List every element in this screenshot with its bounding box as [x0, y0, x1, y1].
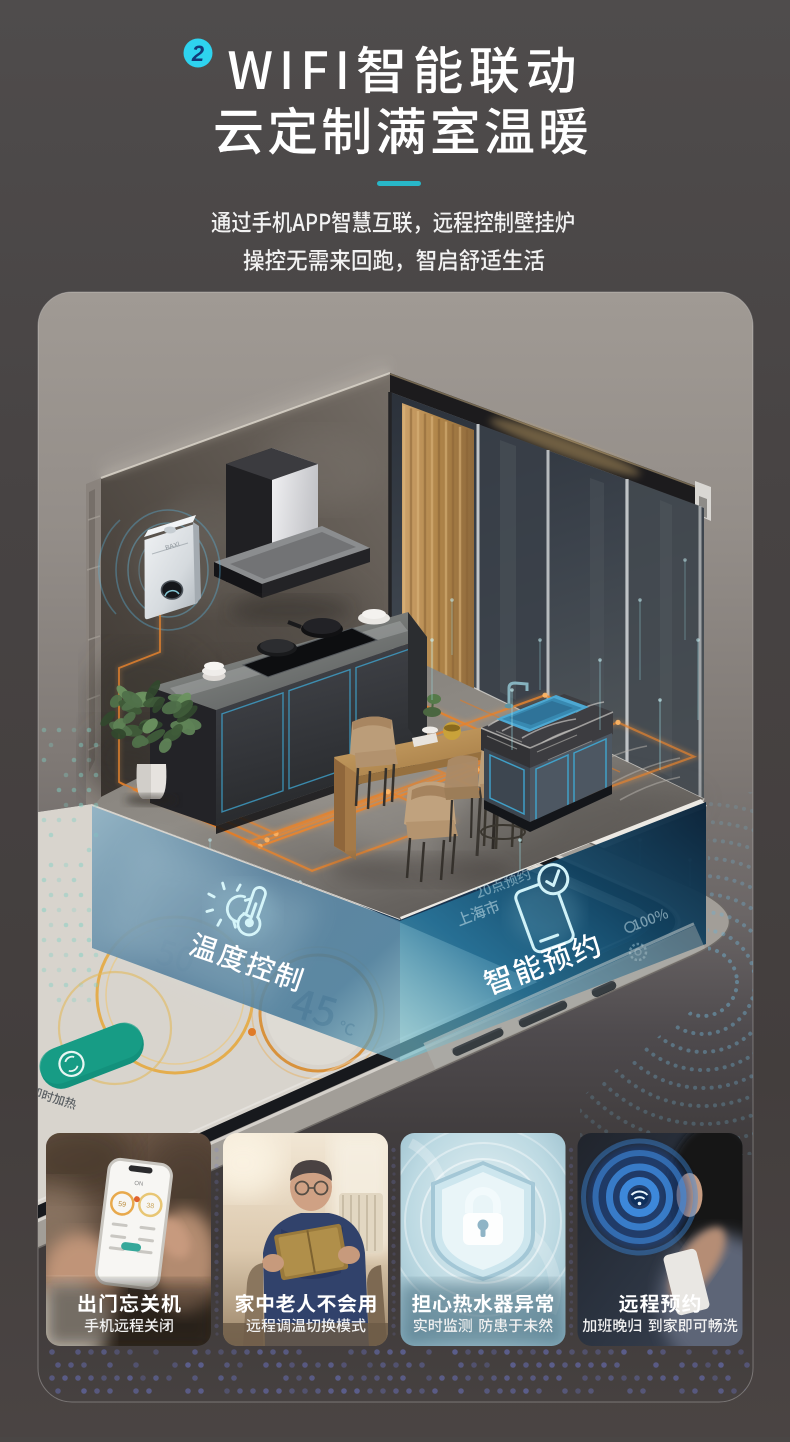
svg-text:59: 59 — [118, 1201, 127, 1209]
svg-text:2: 2 — [191, 41, 205, 66]
svg-text:38: 38 — [146, 1202, 155, 1210]
svg-text:ON: ON — [134, 1181, 144, 1188]
